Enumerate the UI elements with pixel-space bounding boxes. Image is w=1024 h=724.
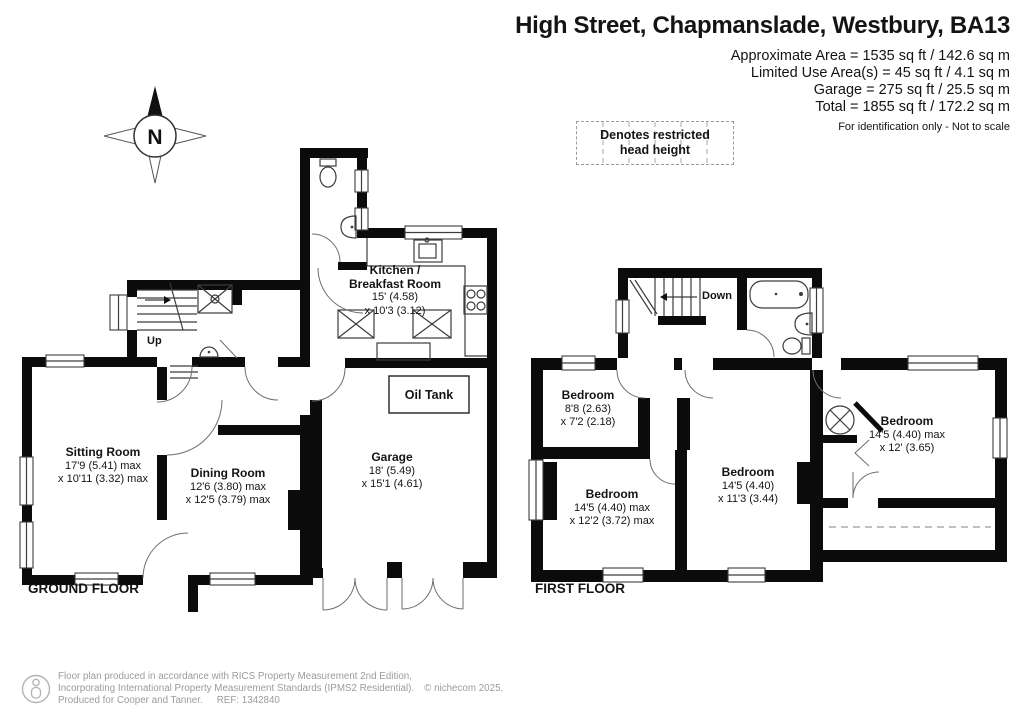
- room-dims: x 12'5 (3.79) max: [153, 494, 303, 508]
- room-name: Kitchen /: [320, 264, 470, 278]
- room-label-bedroom-left: Bedroom 14'5 (4.40) max x 12'2 (3.72) ma…: [537, 488, 687, 529]
- area-line: Total = 1855 sq ft / 172.2 sq m: [731, 99, 1010, 116]
- area-line: Garage = 275 sq ft / 25.5 sq m: [731, 82, 1010, 99]
- area-summary: Approximate Area = 1535 sq ft / 142.6 sq…: [731, 48, 1010, 136]
- wc-sink-icon: [341, 216, 356, 238]
- room-name: Garage: [317, 451, 467, 465]
- first-floor-stairs: [630, 278, 700, 316]
- footer-ipms-text: Incorporating International Property Mea…: [58, 683, 414, 694]
- room-name: Bedroom: [832, 415, 982, 429]
- room-name: Bedroom: [537, 488, 687, 502]
- room-dims: x 7'2 (2.18): [513, 416, 663, 430]
- up-arrow-icon: [164, 296, 171, 304]
- ground-floor-label: GROUND FLOOR: [28, 581, 139, 596]
- footer-produced-for: Produced for Cooper and Tanner.: [58, 695, 203, 706]
- legend-text: Denotes restricted head height: [590, 128, 720, 158]
- footer-line: Floor plan produced in accordance with R…: [58, 671, 503, 683]
- room-name: Bedroom: [513, 389, 663, 403]
- room-dims: 18' (5.49): [317, 465, 467, 479]
- footer-disclaimer: Floor plan produced in accordance with R…: [58, 671, 503, 706]
- compass-rose-icon: N: [104, 86, 206, 183]
- room-label-dining-room: Dining Room 12'6 (3.80) max x 12'5 (3.79…: [153, 467, 303, 508]
- toilet-icon: [320, 159, 336, 187]
- footer-reference: REF: 1342840: [217, 695, 280, 706]
- room-label-garage: Garage 18' (5.49) x 15'1 (4.61): [317, 451, 467, 492]
- room-label-bedroom-right: Bedroom 14'5 (4.40) max x 12' (3.65): [832, 415, 982, 456]
- hall-sink-icon: [200, 347, 218, 357]
- floorplan-page: N: [0, 0, 1024, 724]
- bathroom-toilet-icon: [783, 338, 810, 354]
- oil-tank-label: Oil Tank: [389, 376, 469, 413]
- footer-line: Produced for Cooper and Tanner.REF: 1342…: [58, 695, 503, 707]
- room-name: Dining Room: [153, 467, 303, 481]
- room-dims: 14'5 (4.40) max: [832, 429, 982, 443]
- page-title: High Street, Chapmanslade, Westbury, BA1…: [515, 12, 1010, 40]
- stairs-up-label: Up: [146, 335, 163, 347]
- first-floor-label: FIRST FLOOR: [535, 581, 625, 596]
- scale-disclaimer: For identification only - Not to scale: [731, 119, 1010, 136]
- room-dims: 15' (4.58): [320, 291, 470, 305]
- footer-copyright: © nichecom 2025.: [424, 683, 503, 694]
- room-label-bedroom-middle: Bedroom 14'5 (4.40) x 11'3 (3.44): [673, 466, 823, 507]
- compass-north-letter: N: [147, 126, 162, 149]
- room-dims: x 15'1 (4.61): [317, 478, 467, 492]
- room-label-kitchen: Kitchen / Breakfast Room 15' (4.58) x 10…: [320, 264, 470, 318]
- bath-icon: [750, 281, 808, 308]
- area-line: Approximate Area = 1535 sq ft / 142.6 sq…: [731, 48, 1010, 65]
- stairs-down-label: Down: [701, 290, 733, 302]
- room-name: Breakfast Room: [320, 278, 470, 292]
- footer-line: Incorporating International Property Mea…: [58, 683, 503, 695]
- room-name: Bedroom: [673, 466, 823, 480]
- room-dims: x 12' (3.65): [832, 442, 982, 456]
- room-dims: x 11'3 (3.44): [673, 493, 823, 507]
- room-dims: x 10'3 (3.12): [320, 305, 470, 319]
- restricted-head-height-legend: Denotes restricted head height: [576, 121, 734, 165]
- area-line: Limited Use Area(s) = 45 sq ft / 4.1 sq …: [731, 65, 1010, 82]
- nichecom-person-icon: [23, 676, 50, 703]
- room-name: Sitting Room: [28, 446, 178, 460]
- room-dims: 14'5 (4.40) max: [537, 502, 687, 516]
- room-dims: x 12'2 (3.72) max: [537, 515, 687, 529]
- room-label-bedroom-small: Bedroom 8'8 (2.63) x 7'2 (2.18): [513, 389, 663, 430]
- room-dims: 8'8 (2.63): [513, 403, 663, 417]
- room-dims: 12'6 (3.80) max: [153, 481, 303, 495]
- room-dims: 14'5 (4.40): [673, 480, 823, 494]
